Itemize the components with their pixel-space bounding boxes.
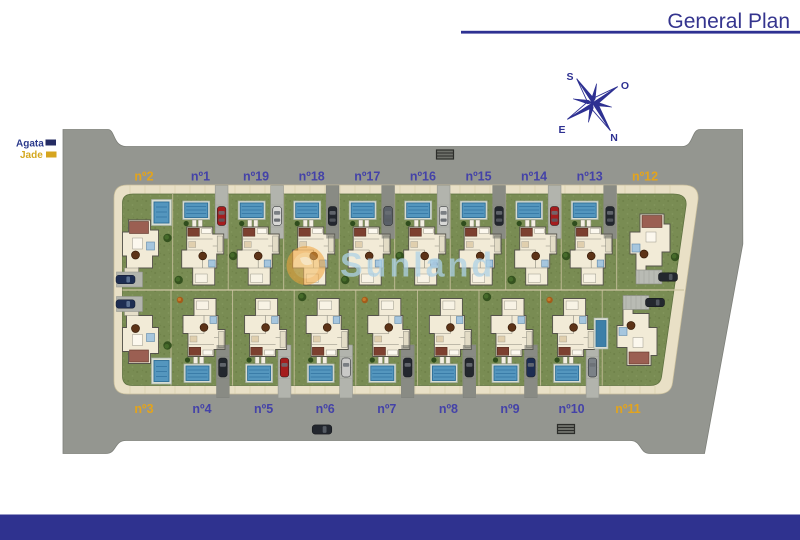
svg-text:Jade: Jade [20,150,43,161]
svg-text:nº11: nº11 [615,402,640,416]
svg-text:nº5: nº5 [254,402,273,416]
svg-text:nº14: nº14 [521,170,547,184]
svg-text:O: O [621,80,629,92]
svg-text:nº15: nº15 [465,170,491,184]
svg-text:nº10: nº10 [559,402,585,416]
svg-text:N: N [610,132,618,144]
svg-text:nº4: nº4 [192,402,211,416]
svg-text:E: E [558,124,565,136]
svg-text:General Plan: General Plan [667,10,790,33]
svg-text:nº13: nº13 [577,170,603,184]
svg-text:S: S [566,71,573,83]
svg-text:nº7: nº7 [377,402,396,416]
svg-text:nº19: nº19 [243,170,269,184]
svg-text:Agata: Agata [16,139,44,150]
svg-text:nº16: nº16 [410,170,436,184]
svg-text:nº2: nº2 [134,170,153,184]
svg-text:nº1: nº1 [191,170,210,184]
svg-text:nº6: nº6 [316,402,335,416]
svg-text:Sunland: Sunland [340,247,495,285]
svg-text:nº17: nº17 [354,170,380,184]
svg-text:nº12: nº12 [632,170,658,184]
svg-text:nº8: nº8 [439,402,458,416]
svg-text:nº9: nº9 [500,402,519,416]
svg-text:nº3: nº3 [134,402,153,416]
svg-text:nº18: nº18 [299,170,325,184]
